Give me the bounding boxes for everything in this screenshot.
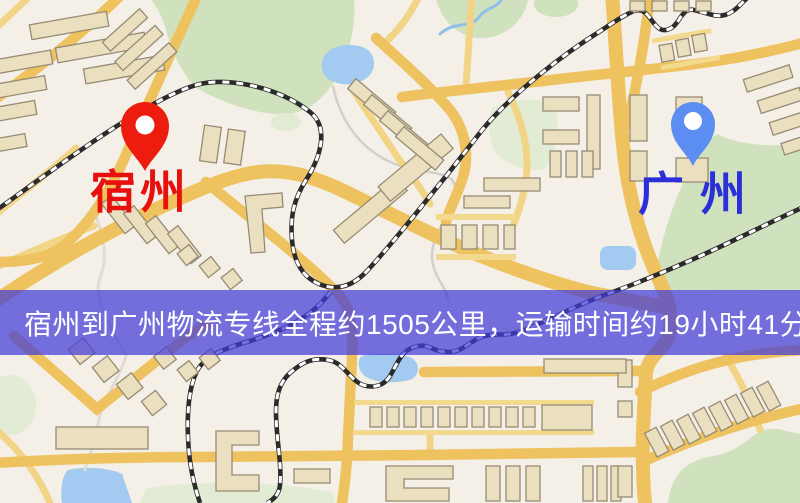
destination-pin-hole xyxy=(684,112,702,130)
map-view: 宿州 广州 宿州到广州物流专线全程约1505公里，运输时间约19小时41分钟. xyxy=(0,0,800,503)
origin-pin-hole xyxy=(136,116,155,135)
route-info-text: 宿州到广州物流专线全程约1505公里，运输时间约19小时41分钟. xyxy=(0,303,800,343)
street-map[interactable] xyxy=(0,0,800,503)
route-info-banner: 宿州到广州物流专线全程约1505公里，运输时间约19小时41分钟. xyxy=(0,290,800,355)
